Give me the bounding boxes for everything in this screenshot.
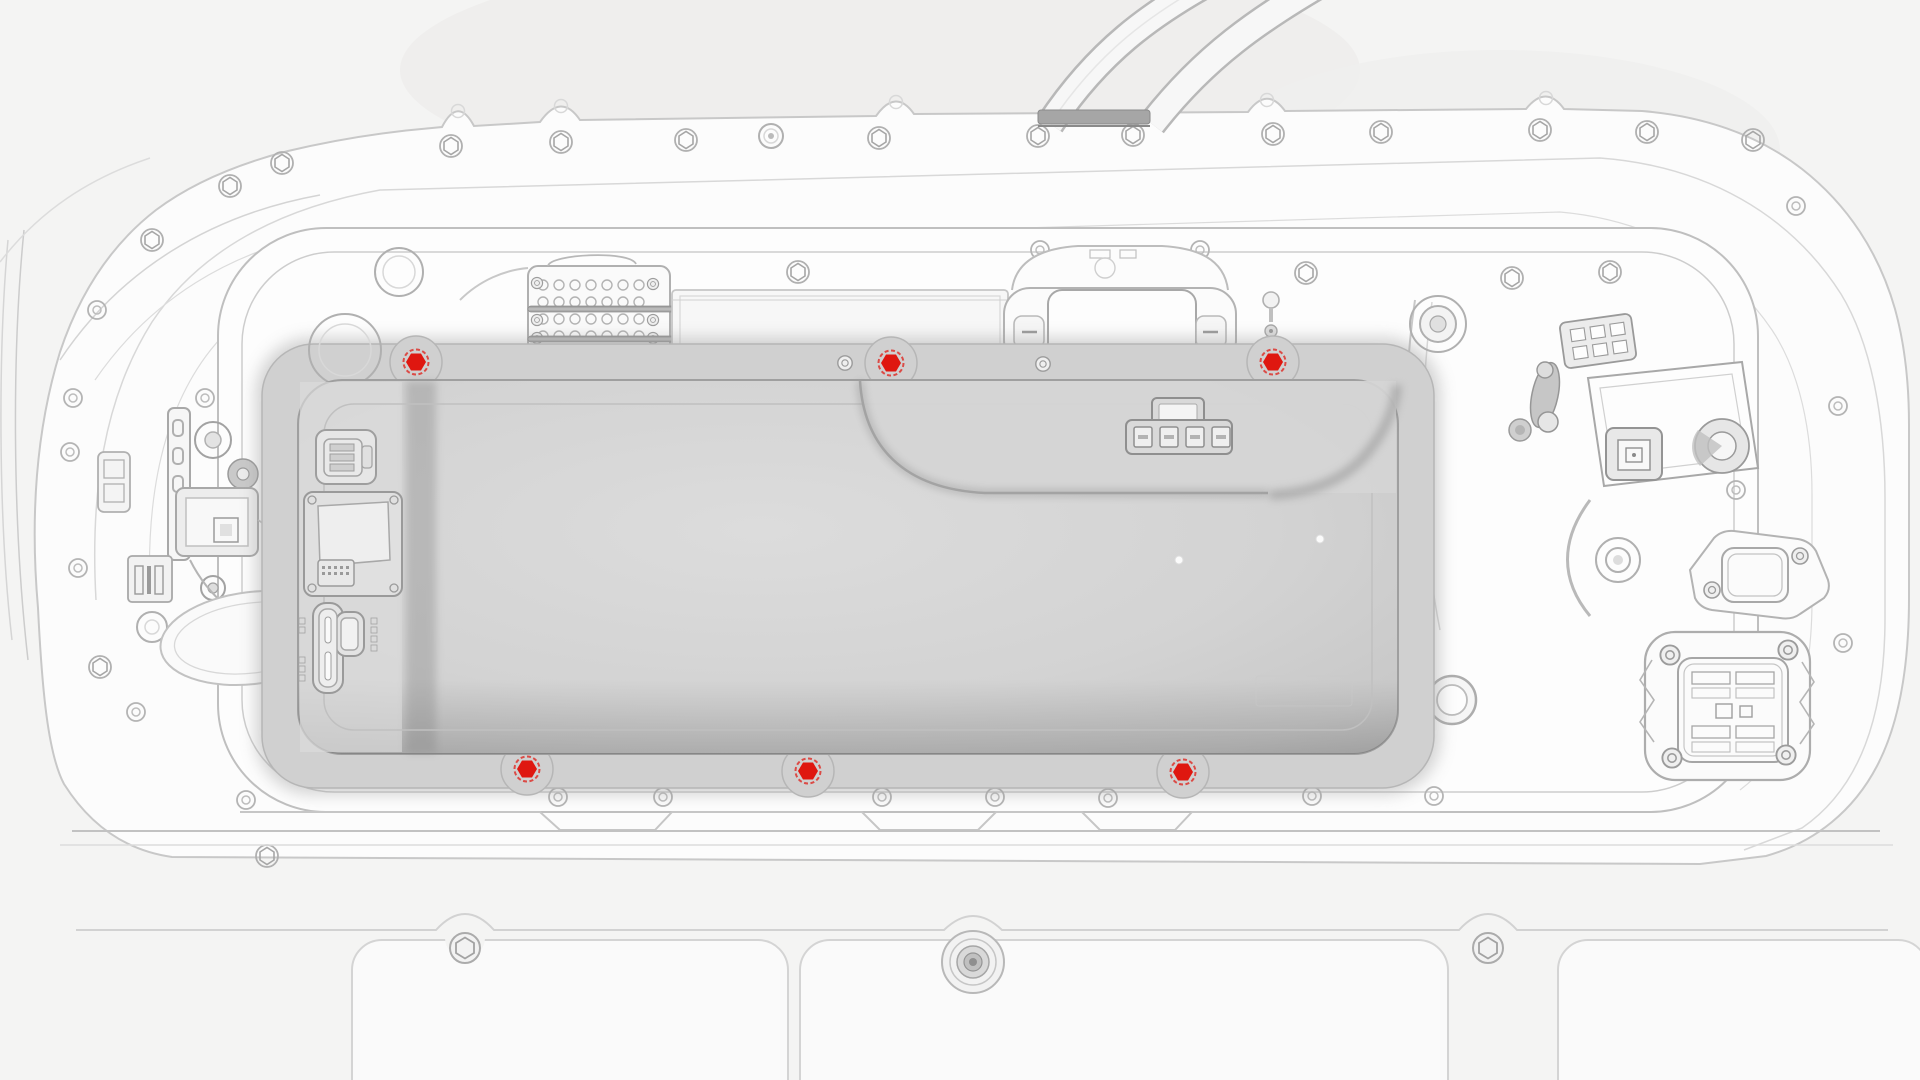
relay-bar — [147, 566, 151, 594]
valve-hub — [1430, 316, 1446, 332]
torx-screw-icon — [1778, 640, 1797, 659]
left-rim-line-2 — [15, 230, 28, 660]
panel-bolt-icon — [450, 933, 480, 963]
lever-pivot — [1537, 362, 1553, 378]
edge-connector — [98, 452, 130, 512]
idler-hub — [205, 432, 221, 448]
roller-hub — [1515, 425, 1525, 435]
bottom-panels — [352, 918, 1920, 1080]
lever-end — [1538, 412, 1558, 432]
pulley-hub — [237, 468, 249, 480]
penthouse-illustration — [0, 0, 1920, 1080]
valve-connector-module — [1559, 313, 1637, 369]
bottom-panel-center — [800, 940, 1448, 1080]
penthouse-cover — [298, 380, 1398, 754]
torx-screw-icon — [531, 314, 542, 325]
coolant-port-inner — [1437, 685, 1467, 715]
cover-connector-small — [316, 430, 376, 484]
small-roller-hub — [208, 583, 218, 593]
cover-module — [304, 492, 402, 596]
bottom-panel-left — [352, 940, 788, 1080]
cover-seam-band — [406, 381, 436, 753]
service-port-plate — [1690, 531, 1829, 619]
left-module-clip-inner — [220, 524, 232, 536]
panel-bolt-icon — [1473, 933, 1503, 963]
torx-screw-icon — [647, 278, 658, 289]
lower-ring-hub — [1613, 555, 1623, 565]
line-art-canvas — [0, 0, 1920, 1080]
sensor-connector — [1606, 428, 1662, 480]
torx-screw-icon — [1662, 748, 1681, 767]
cover-highlight-dot — [1175, 556, 1183, 564]
torx-screw-icon — [1704, 582, 1720, 598]
torx-screw-icon — [1776, 745, 1795, 764]
cover-highlight-dot — [1316, 535, 1324, 543]
torx-screw-icon — [531, 277, 542, 288]
torx-screw-icon — [647, 314, 658, 325]
bottom-panel-right — [1558, 940, 1920, 1080]
coolant-fill-port — [942, 931, 1004, 993]
harness-clamp — [1038, 110, 1150, 124]
torx-screw-icon — [1792, 548, 1808, 564]
torx-screw-icon — [1036, 357, 1050, 371]
main-connector — [1640, 632, 1814, 780]
torx-screw-icon — [838, 356, 852, 370]
torx-screw-icon — [1660, 645, 1679, 664]
left-rim-line — [1, 240, 12, 640]
